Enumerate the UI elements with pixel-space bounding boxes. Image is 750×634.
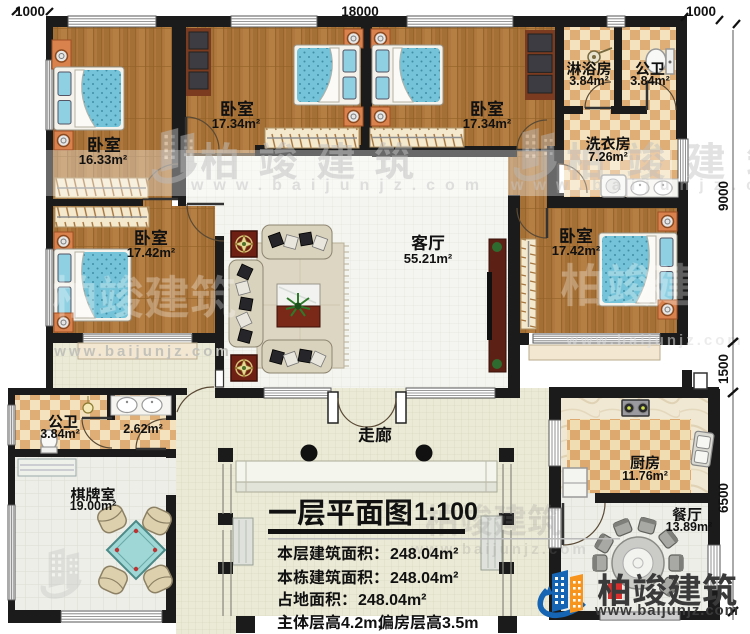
- svg-text:1000: 1000: [15, 4, 45, 19]
- svg-text:3.84m²: 3.84m²: [569, 74, 609, 88]
- svg-text:1:100: 1:100: [414, 498, 478, 526]
- svg-text:1000: 1000: [686, 4, 716, 19]
- svg-text:16.33m²: 16.33m²: [79, 152, 128, 167]
- svg-text:17.34m²: 17.34m²: [212, 116, 261, 131]
- svg-text:11.76m²: 11.76m²: [622, 469, 668, 483]
- svg-text:7.26m²: 7.26m²: [588, 150, 628, 164]
- svg-text:17.42m²: 17.42m²: [552, 243, 601, 258]
- svg-text:17.34m²: 17.34m²: [463, 116, 512, 131]
- svg-text:www.baijunjz.com: www.baijunjz.com: [190, 177, 489, 194]
- svg-text:17.42m²: 17.42m²: [127, 245, 176, 260]
- svg-text:www.baijunjz.com: www.baijunjz.com: [565, 332, 743, 349]
- svg-text:248.04m²: 248.04m²: [358, 592, 427, 609]
- svg-text:1500: 1500: [716, 354, 731, 384]
- svg-text:www.baijunjz.com: www.baijunjz.com: [594, 602, 739, 619]
- svg-text:www.baijunjz.com: www.baijunjz.com: [53, 343, 231, 360]
- svg-text:248.04m²: 248.04m²: [390, 570, 459, 587]
- svg-text:13.89m²: 13.89m²: [666, 520, 713, 534]
- svg-text:3.84m²: 3.84m²: [630, 74, 670, 88]
- svg-text:19.00m²: 19.00m²: [70, 499, 117, 513]
- svg-text:www.baijunjz.com: www.baijunjz.com: [510, 177, 750, 194]
- svg-text:2.62m²: 2.62m²: [123, 422, 163, 436]
- svg-text:4.2m,: 4.2m,: [341, 615, 382, 632]
- svg-text:248.04m²: 248.04m²: [390, 546, 459, 563]
- svg-text:55.21m²: 55.21m²: [404, 251, 453, 266]
- svg-text:3.5m: 3.5m: [442, 615, 478, 632]
- svg-text:6500: 6500: [716, 483, 731, 513]
- svg-text:9000: 9000: [716, 181, 731, 211]
- svg-text:3.84m²: 3.84m²: [40, 427, 80, 441]
- svg-text:18000: 18000: [341, 4, 379, 19]
